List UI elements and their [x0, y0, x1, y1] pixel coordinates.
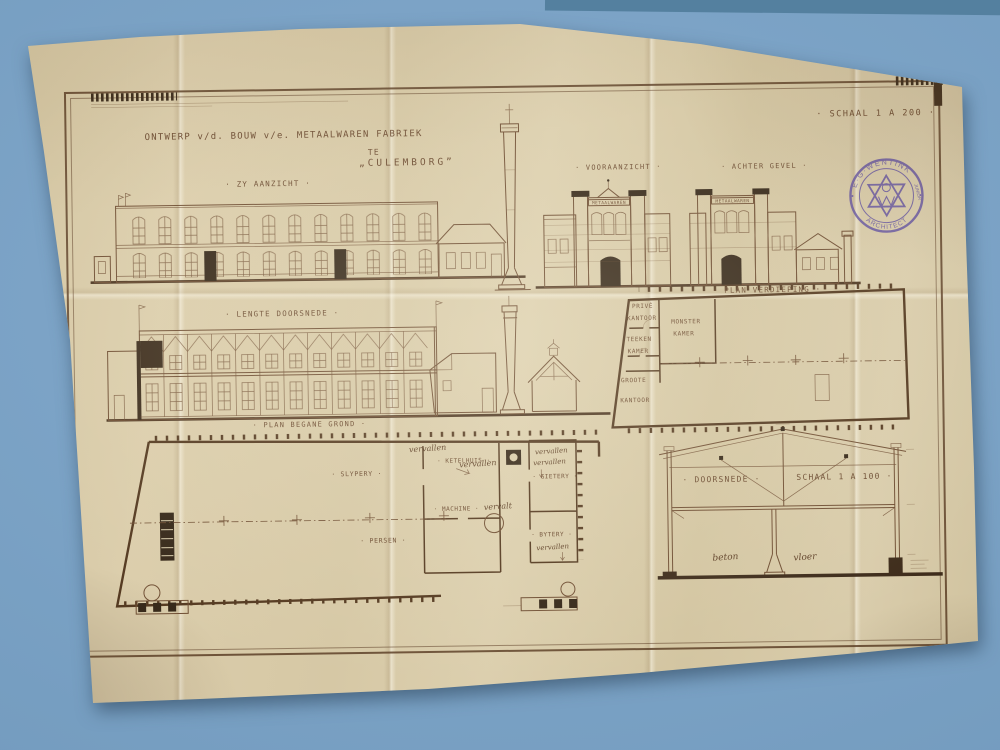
- facade-sign-rear: METAALWAREN: [716, 198, 750, 204]
- room-teeken-line2: KAMER: [628, 348, 649, 355]
- annex-sections-drawing: [429, 295, 581, 415]
- architect-stamp: E·G·WENTINK ARCHITECT JUNIOR: [849, 157, 923, 232]
- sheet-content: METAALWAREN: [0, 0, 1000, 750]
- label-ground-floor-plan: · PLAN BEGANE GROND ·: [253, 420, 367, 430]
- title-line3: „CULEMBORG”: [359, 157, 455, 169]
- chimney-elevation: [492, 104, 531, 290]
- rear-elevation-drawing: METAALWAREN: [685, 187, 860, 285]
- ground-floor-plan-drawing: [115, 430, 601, 617]
- room-slypery: · SLYPERY ·: [331, 470, 382, 479]
- front-elevation-drawing: METAALWAREN: [534, 178, 690, 287]
- long-section-drawing: [105, 298, 611, 420]
- label-upper-floor-plan: · PLAN VERDIEPING ·: [713, 285, 822, 296]
- label-cross-section-scale: SCHAAL 1 A 100 ·: [796, 472, 892, 482]
- label-rear-elevation: · ACHTER GEVEL ·: [721, 162, 808, 171]
- side-elevation-drawing: [89, 188, 525, 283]
- room-gietery: · GIETERY ·: [532, 473, 577, 481]
- title-line2: TE: [368, 148, 380, 157]
- room-persen: · PERSEN ·: [360, 536, 406, 545]
- label-side-elevation: · ZY AANZICHT ·: [225, 179, 311, 189]
- facade-sign-front: METAALWAREN: [592, 200, 626, 206]
- note-vervalt: vervalt: [483, 501, 512, 512]
- label-front-elevation: · VOORAANZICHT ·: [575, 163, 662, 172]
- upper-floor-plan-drawing: [611, 283, 909, 433]
- note-vloer: vloer: [793, 552, 817, 564]
- drawing-sheet-paper: METAALWAREN: [0, 0, 1000, 750]
- photo-background: METAALWAREN: [0, 0, 1000, 750]
- room-prive-line1: PRIVÉ: [632, 303, 653, 310]
- room-groote-line1: GROOTE: [621, 377, 646, 384]
- label-cross-section: · DOORSNEDE ·: [682, 474, 760, 484]
- room-monster-line1: MONSTER: [671, 318, 701, 325]
- note-beton: beton: [712, 552, 739, 564]
- room-machine: · MACHINE ·: [434, 505, 479, 513]
- drawing-sheet-wrap: METAALWAREN: [0, 0, 1000, 750]
- room-groote-line2: KANTOOR: [620, 397, 650, 404]
- room-teeken-line1: TEEKEN: [626, 336, 651, 343]
- room-prive-line2: KANTOOR: [627, 315, 657, 322]
- room-monster-line2: KAMER: [673, 330, 694, 337]
- room-bytery: · BYTERY ·: [531, 531, 572, 539]
- scale-note-200: · SCHAAL 1 A 200 ·: [816, 108, 935, 120]
- label-long-section: · LENGTE DOORSNEDE ·: [225, 308, 339, 319]
